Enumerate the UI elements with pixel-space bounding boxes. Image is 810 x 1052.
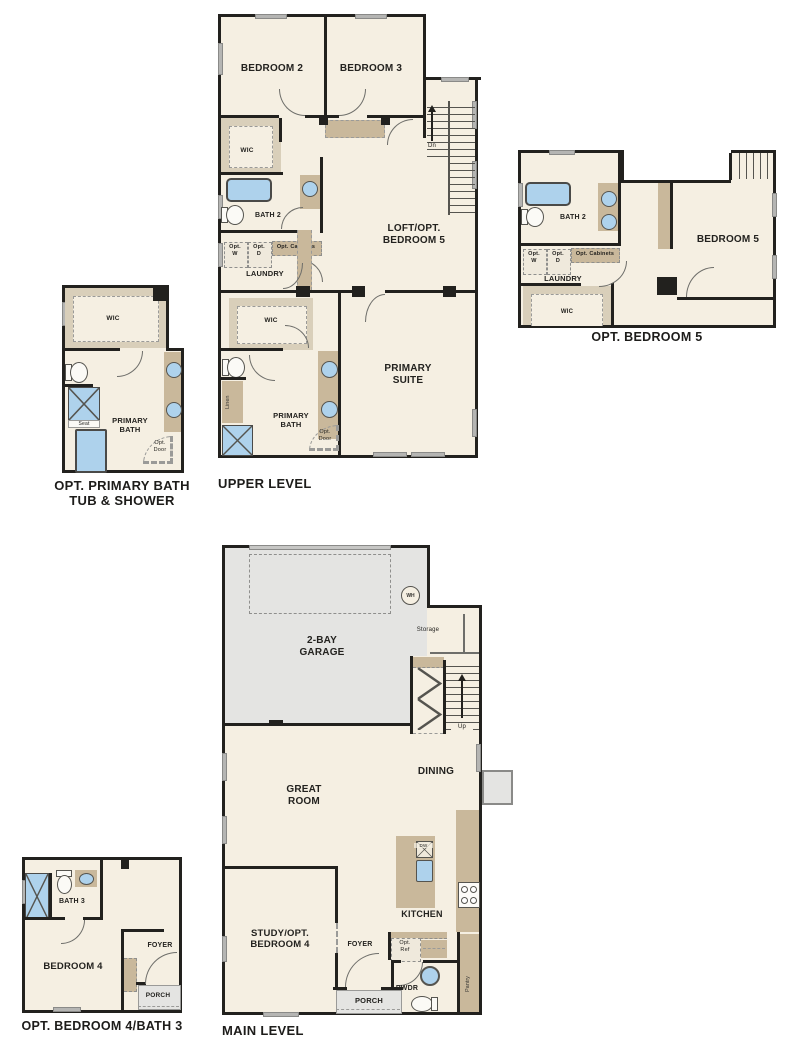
wall: [657, 277, 677, 295]
kitchen-label: KITCHEN: [382, 909, 462, 920]
window: [772, 255, 777, 279]
wall: [521, 243, 621, 246]
window: [263, 1012, 299, 1017]
opening-dashed: [413, 733, 443, 734]
wall: [319, 115, 328, 125]
door-arc: [117, 351, 143, 377]
wall: [225, 866, 338, 869]
water-heater: WH: [401, 586, 420, 605]
window: [355, 14, 387, 19]
wall: [83, 917, 103, 920]
door-arc: [686, 267, 714, 297]
range: [458, 882, 480, 908]
porch-label: PORCH: [135, 992, 181, 1000]
toilet: [411, 996, 433, 1012]
wall: [25, 917, 65, 920]
linen-label: Linen: [225, 385, 231, 419]
door-arc: [281, 207, 303, 229]
opt-door-label: Opt. Door: [311, 429, 339, 442]
wall: [153, 288, 166, 301]
opt-refrigerator-label: Opt. Ref: [391, 940, 419, 953]
sink: [302, 181, 318, 197]
wall: [367, 115, 423, 118]
wall: [65, 348, 120, 351]
window: [549, 150, 575, 155]
garage-label: 2-BAY GARAGE: [272, 635, 372, 659]
wall: [279, 118, 282, 142]
stairs: [733, 153, 773, 179]
wall: [430, 652, 479, 654]
opt-door-label: Opt. Door: [147, 440, 173, 453]
door-arc: [249, 355, 275, 381]
opt-cabinets-label: Opt. Cabinets: [270, 244, 322, 251]
door-arc: [387, 119, 413, 145]
wall: [221, 172, 283, 175]
wall-cabinet: [297, 230, 312, 290]
sink: [601, 191, 617, 207]
stair-direction-arrow: [461, 680, 463, 718]
sink: [166, 362, 182, 378]
fireplace: [482, 770, 513, 805]
window: [222, 816, 227, 844]
wall: [423, 14, 481, 80]
wall: [677, 297, 775, 300]
opt-bedroom4-plan: BATH 3 BEDROOM 4 FOYER PORCH: [22, 857, 182, 1013]
sink: [321, 361, 338, 378]
wall: [621, 150, 731, 183]
front-door-arc: [145, 952, 177, 984]
sink: [601, 214, 617, 230]
storage-label: Storage: [405, 627, 451, 634]
hall-closet: [325, 120, 385, 138]
stair-direction-arrow: [431, 111, 433, 141]
door-arc: [61, 920, 85, 944]
upper-level-title: UPPER LEVEL: [218, 476, 312, 491]
door-arc: [599, 261, 627, 287]
wall: [456, 290, 475, 293]
wic-label: WIC: [221, 147, 273, 155]
opt-washer-label: Opt. W: [224, 244, 246, 257]
window: [255, 14, 287, 19]
bathtub: [226, 178, 272, 202]
wall: [221, 230, 307, 233]
wall: [221, 377, 246, 380]
porch-edge-dashed: [336, 1009, 400, 1010]
wall: [385, 290, 443, 293]
opt-bedroom5-title: OPT. BEDROOM 5: [518, 330, 776, 344]
opt-dryer-label: Opt. D: [248, 244, 270, 257]
wic-label: WIC: [73, 315, 153, 323]
pantry-label: Pantry: [465, 962, 471, 1006]
floorplan-page: WIC BATH 2 Opt. W Opt. D Opt. Cabinets L…: [0, 0, 810, 1052]
main-level-title: MAIN LEVEL: [222, 1023, 304, 1038]
wall: [670, 183, 673, 249]
wall: [443, 660, 446, 734]
wall: [381, 115, 390, 125]
kitchen-counter: [421, 940, 447, 958]
opt-washer-label: Opt. W: [523, 251, 545, 264]
bathtub: [525, 182, 571, 206]
window: [373, 452, 407, 457]
stair-landing-cabinet: [413, 657, 444, 668]
wall: [100, 860, 103, 920]
toilet: [431, 997, 438, 1011]
wall: [124, 929, 164, 932]
shower: [25, 873, 49, 920]
primary-suite-label: PRIMARY SUITE: [358, 363, 458, 387]
sink: [321, 401, 338, 418]
front-door-arc: [345, 953, 379, 987]
shower: [222, 425, 253, 456]
dining-label: DINING: [396, 766, 476, 778]
storage-door: [463, 614, 465, 652]
primary-bath-label: PRIMARY BATH: [95, 416, 165, 434]
window: [222, 753, 227, 781]
opt-dryer-label: Opt. D: [547, 251, 569, 264]
wall: [427, 545, 482, 608]
wall: [49, 873, 52, 918]
kitchen-sink: [416, 860, 433, 882]
counter-dash: [423, 948, 445, 949]
wall: [335, 953, 338, 990]
wall: [121, 860, 129, 869]
primary-wic-label: WIC: [233, 317, 309, 325]
bedroom3-label: BEDROOM 3: [321, 63, 421, 75]
door-arc: [365, 294, 385, 322]
bedroom5-label: BEDROOM 5: [678, 234, 778, 246]
window: [772, 193, 777, 217]
stairs-up-label: Up: [451, 724, 473, 731]
window: [472, 409, 477, 437]
toilet: [227, 357, 245, 378]
loft-label: LOFT/OPT. BEDROOM 5: [359, 223, 469, 247]
main-level-plan: 2-BAY GARAGE WH Storage Up GREAT ROOM DI…: [222, 545, 482, 1015]
wall: [335, 866, 338, 923]
opt-primary-bath-title: OPT. PRIMARY BATH TUB & SHOWER: [42, 478, 202, 508]
bedroom4-label: BEDROOM 4: [25, 961, 121, 972]
window: [411, 452, 445, 457]
sink: [166, 402, 182, 418]
window: [218, 243, 223, 267]
opt-bedroom5-plan: BATH 2 Opt. W Opt. D Opt. Cabinets LAUND…: [518, 150, 776, 328]
bath3-label: BATH 3: [42, 898, 102, 906]
great-room-label: GREAT ROOM: [254, 784, 354, 808]
sink: [79, 873, 94, 885]
stairs-dn-label: Dn: [421, 143, 443, 150]
window: [53, 1007, 81, 1012]
opt-bedroom4-title: OPT. BEDROOM 4/BATH 3: [14, 1019, 190, 1033]
wall: [221, 290, 352, 293]
wall: [443, 286, 456, 297]
foyer-label: FOYER: [337, 941, 383, 949]
stairs: [450, 157, 475, 215]
wall: [423, 960, 460, 963]
bath2-label: BATH 2: [543, 214, 603, 222]
stairs: [446, 660, 479, 734]
porch-edge-dashed: [138, 1006, 179, 1007]
garage-door-swing: [249, 554, 391, 614]
bathtub: [75, 429, 107, 473]
study-label: STUDY/OPT. BEDROOM 4: [230, 928, 330, 951]
wall: [225, 723, 412, 726]
wall: [296, 286, 310, 297]
bedroom2-label: BEDROOM 2: [222, 63, 322, 75]
wall: [166, 285, 184, 351]
window: [441, 77, 469, 82]
opt-door-opening: [124, 958, 137, 992]
wall: [729, 153, 732, 180]
toilet: [526, 207, 544, 227]
dishwasher-label: DW: [414, 843, 433, 848]
wic-label: WIC: [537, 309, 597, 316]
laundry-label: LAUNDRY: [528, 274, 598, 283]
toilet: [57, 875, 72, 894]
porch-label: PORCH: [341, 996, 397, 1005]
wall: [423, 80, 426, 138]
door-arc: [339, 89, 366, 116]
window: [476, 744, 481, 772]
wall: [320, 157, 323, 233]
wall: [611, 283, 614, 325]
opt-primary-bath-plan: WIC Seat PRIMARY BATH Opt. Door: [62, 285, 184, 473]
toilet: [70, 362, 88, 383]
wall: [221, 348, 283, 351]
wall: [618, 153, 621, 246]
coat-closet-doors: [415, 668, 443, 730]
window: [222, 936, 227, 962]
garage-door: [249, 545, 391, 550]
door-arc: [279, 89, 305, 116]
opt-cabinets-label: Opt. Cabinets: [569, 251, 621, 258]
foyer-label: FOYER: [138, 942, 182, 950]
sink: [420, 966, 440, 986]
wall: [352, 286, 365, 297]
wall: [269, 720, 283, 726]
upper-level-plan: WIC BATH 2 Opt. W Opt. D Opt. Cabinets L…: [218, 14, 478, 458]
window: [518, 183, 523, 207]
bedroom5-closet: [658, 183, 670, 249]
